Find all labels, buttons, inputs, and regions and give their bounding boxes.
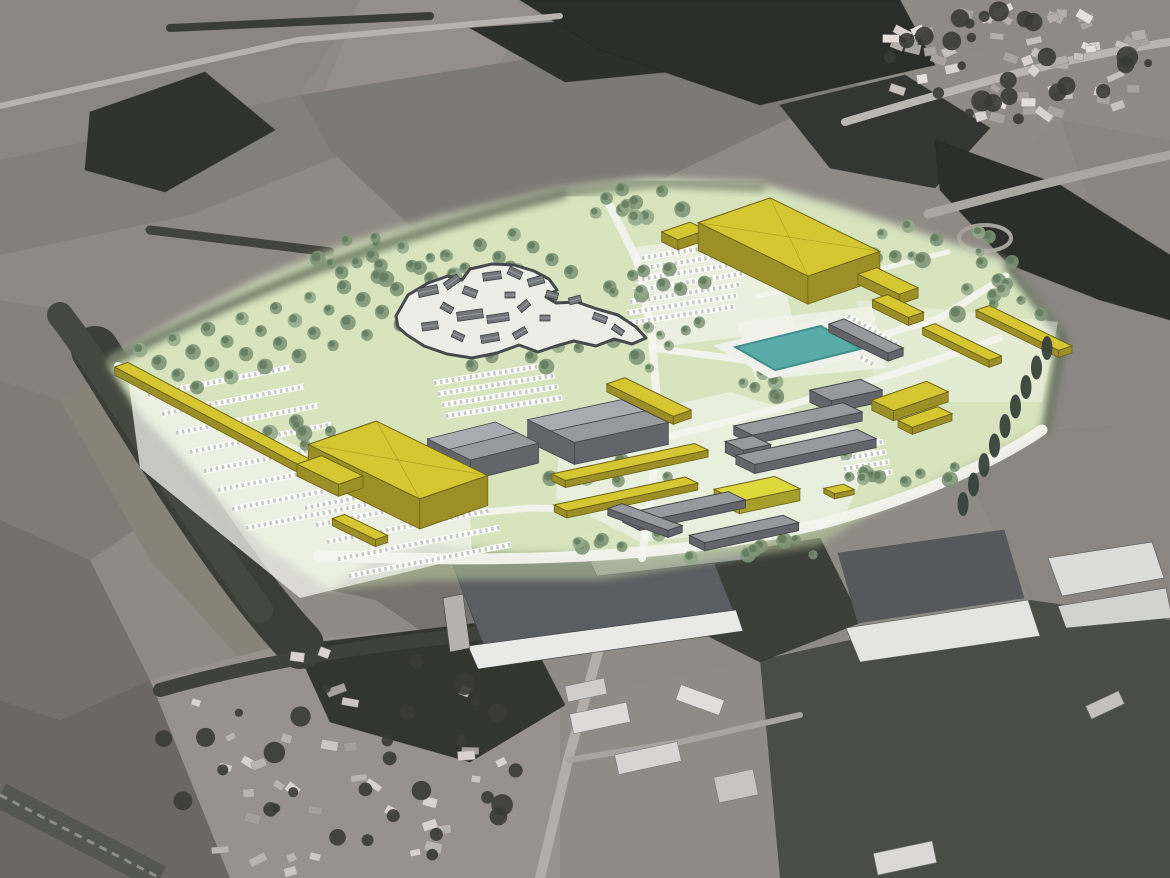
masterplan-aerial-view (0, 0, 1170, 878)
masterplan-rendering (0, 0, 1170, 878)
